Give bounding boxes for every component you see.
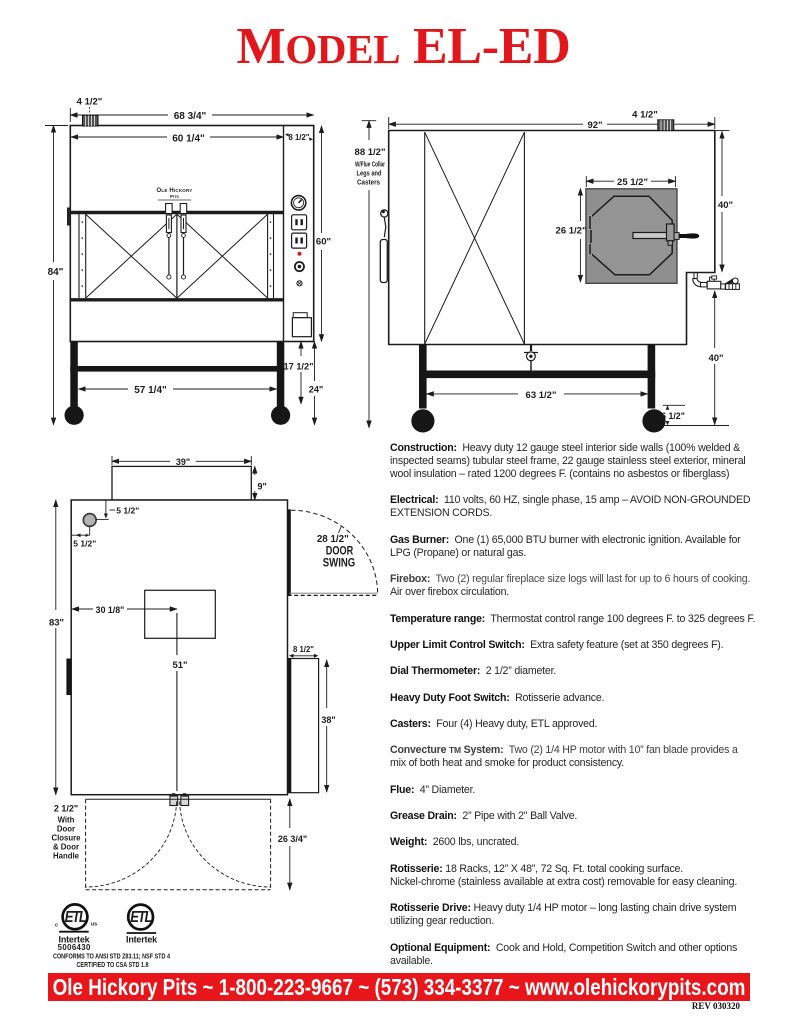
- svg-text:ETL: ETL: [65, 909, 87, 926]
- svg-text:Legs and: Legs and: [357, 171, 382, 178]
- svg-text:26 3/4": 26 3/4": [278, 834, 307, 844]
- svg-text:84": 84": [48, 267, 64, 278]
- svg-text:5 1/2": 5 1/2": [73, 539, 96, 549]
- svg-text:60": 60": [316, 237, 331, 248]
- svg-text:51": 51": [172, 660, 187, 671]
- svg-text:Intertek: Intertek: [126, 935, 158, 945]
- svg-text:CERTIFIED TO CSA STD 1.8: CERTIFIED TO CSA STD 1.8: [77, 960, 149, 969]
- svg-text:Door: Door: [57, 825, 75, 834]
- svg-text:Closure: Closure: [51, 834, 81, 843]
- svg-text:57 1/4": 57 1/4": [134, 385, 167, 396]
- svg-text:39": 39": [176, 457, 190, 467]
- svg-text:40": 40": [708, 353, 723, 364]
- svg-text:W/Flue Collar: W/Flue Collar: [355, 162, 385, 169]
- svg-text:& Door: & Door: [53, 843, 79, 852]
- svg-text:92": 92": [587, 120, 602, 131]
- svg-text:c: c: [55, 923, 58, 929]
- svg-text:26 1/2": 26 1/2": [556, 226, 587, 237]
- svg-text:38": 38": [321, 715, 335, 725]
- svg-text:60 1/4": 60 1/4": [172, 134, 205, 145]
- svg-text:PITS: PITS: [170, 194, 179, 199]
- svg-text:us: us: [91, 922, 97, 928]
- svg-text:83": 83": [49, 618, 64, 629]
- svg-text:5 1/2": 5 1/2": [116, 506, 139, 516]
- svg-text:6 1/2": 6 1/2": [661, 411, 685, 421]
- svg-text:24": 24": [309, 385, 324, 395]
- svg-text:25 1/2": 25 1/2": [617, 177, 648, 188]
- svg-text:9": 9": [258, 482, 267, 492]
- svg-text:With: With: [58, 816, 75, 825]
- svg-text:30 1/8": 30 1/8": [96, 605, 125, 615]
- svg-text:SWING: SWING: [323, 558, 356, 570]
- svg-text:40": 40": [718, 200, 733, 211]
- svg-text:28 1/2": 28 1/2": [317, 534, 349, 545]
- svg-text:Casters: Casters: [357, 180, 380, 187]
- svg-text:68 3/4": 68 3/4": [174, 111, 207, 122]
- svg-text:4 1/2": 4 1/2": [632, 110, 658, 121]
- svg-text:8 1/2": 8 1/2": [288, 133, 309, 142]
- svg-text:17 1/2": 17 1/2": [284, 362, 314, 372]
- svg-text:Handle: Handle: [53, 852, 80, 861]
- svg-text:2 1/2": 2 1/2": [54, 804, 78, 814]
- svg-text:63 1/2": 63 1/2": [526, 390, 557, 401]
- svg-text:DOOR: DOOR: [326, 546, 354, 558]
- svg-text:4 1/2": 4 1/2": [77, 97, 103, 108]
- svg-text:88 1/2": 88 1/2": [355, 147, 386, 158]
- svg-text:8 1/2": 8 1/2": [293, 645, 314, 654]
- svg-text:ETL: ETL: [130, 909, 152, 926]
